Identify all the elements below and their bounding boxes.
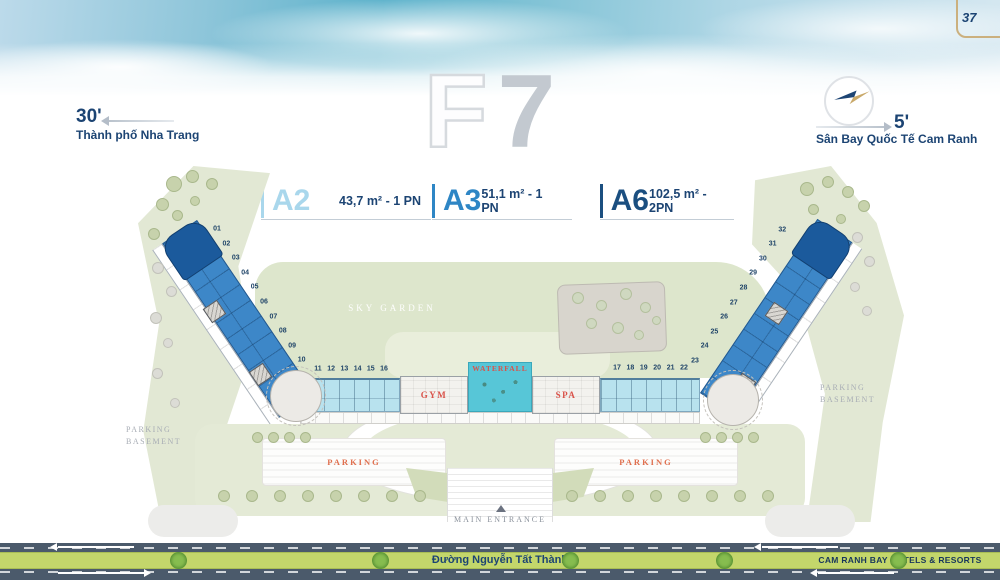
unit-number: 31	[769, 241, 777, 248]
unit-number: 02	[222, 240, 230, 247]
tree-icon	[172, 210, 183, 221]
tree-icon	[562, 552, 579, 569]
unit-number: 30	[759, 255, 767, 262]
tree-icon	[166, 176, 182, 192]
traffic-arrow-left-icon	[50, 543, 57, 551]
unit-number: 28	[740, 285, 748, 292]
right-arrow-icon	[884, 122, 892, 132]
right-arrow-line	[816, 126, 886, 128]
tree-icon	[330, 490, 342, 502]
tree-icon	[620, 288, 632, 300]
tree-icon	[864, 256, 875, 267]
unit-number: 24	[701, 343, 709, 350]
tree-icon	[808, 204, 819, 215]
tree-icon	[850, 282, 860, 292]
unit-number: 32	[778, 226, 786, 233]
main-entrance-label: MAIN ENTRANCE	[440, 515, 560, 524]
lane-dash	[0, 547, 1000, 549]
legend-spec-a6: 102,5 m² - 2PN	[649, 187, 724, 215]
unit-number: 23	[691, 358, 699, 365]
tree-icon	[678, 490, 690, 502]
tree-icon	[652, 316, 661, 325]
unit-number: 04	[241, 269, 249, 276]
tree-icon	[274, 490, 286, 502]
legend-item-a2: A2 43,7 m² - 1 PN	[261, 182, 431, 220]
parking-basement-left-label: PARKING BASEMENT	[126, 424, 196, 448]
floor-code: F 7	[424, 60, 559, 164]
nha-trang-minutes: 30'	[76, 106, 102, 128]
parking-left-label: PARKING	[327, 457, 381, 467]
tree-icon	[300, 432, 311, 443]
tree-icon	[716, 552, 733, 569]
tree-icon	[152, 368, 163, 379]
unit-number: 07	[269, 313, 277, 320]
tree-icon	[206, 178, 218, 190]
tree-icon	[358, 490, 370, 502]
tree-icon	[152, 262, 164, 274]
unit-number: 16	[380, 366, 388, 373]
tree-icon	[186, 170, 199, 183]
tree-icon	[858, 200, 870, 212]
tree-icon	[218, 490, 230, 502]
airport-label: Sân Bay Quốc Tế Cam Ranh	[816, 132, 977, 146]
left-arrow-line	[108, 120, 174, 122]
tree-icon	[640, 302, 651, 313]
tree-icon	[372, 552, 389, 569]
traffic-arrow-line	[58, 546, 134, 548]
tree-icon	[842, 186, 854, 198]
parking-basement-right-label: PARKING BASEMENT	[820, 382, 890, 406]
unit-number: 15	[367, 366, 375, 373]
tree-icon	[700, 432, 711, 443]
legend-spec-a2: 43,7 m² - 1 PN	[339, 194, 421, 208]
spa-label: SPA	[556, 390, 577, 400]
waterfall-label: WATERFALL	[462, 364, 538, 373]
tree-icon	[566, 490, 578, 502]
units-band-center-right	[600, 378, 700, 412]
unit-number: 06	[260, 299, 268, 306]
tree-icon	[170, 398, 180, 408]
tree-icon	[716, 432, 727, 443]
unit-number: 03	[232, 255, 240, 262]
unit-number: 01	[213, 226, 221, 233]
tree-icon	[572, 292, 584, 304]
sidewalk-pad-left	[148, 505, 238, 537]
floor-letter: F	[424, 60, 492, 164]
tree-icon	[634, 330, 644, 340]
tree-icon	[734, 490, 746, 502]
unit-number: 10	[298, 357, 306, 364]
tree-icon	[302, 490, 314, 502]
tree-icon	[732, 432, 743, 443]
entrance-arrow-icon	[496, 505, 506, 512]
unit-number: 09	[288, 342, 296, 349]
tree-icon	[594, 490, 606, 502]
sky-garden-label: SKY GARDEN	[332, 303, 452, 313]
rotunda-right	[707, 374, 759, 426]
legend-code-a2: A2	[272, 186, 310, 216]
unit-number: 22	[680, 365, 688, 372]
tree-icon	[268, 432, 279, 443]
tree-icon	[762, 490, 774, 502]
tree-icon	[650, 490, 662, 502]
tree-icon	[163, 338, 173, 348]
legend-item-a3: A3 51,1 m² - 1 PN	[432, 182, 572, 220]
tree-icon	[150, 312, 162, 324]
floor-digit: 7	[498, 60, 560, 164]
unit-number: 26	[720, 314, 728, 321]
traffic-arrow-line	[762, 546, 838, 548]
spa-block: SPA	[532, 376, 600, 414]
left-arrow-icon	[101, 116, 109, 126]
unit-number: 05	[251, 284, 259, 291]
unit-number: 11	[314, 366, 321, 373]
unit-number: 25	[710, 328, 718, 335]
tree-icon	[170, 552, 187, 569]
unit-number: 17	[613, 365, 621, 372]
tree-icon	[612, 322, 624, 334]
tree-icon	[800, 182, 814, 196]
brochure-page: 37 F 7 30' Thành phố Nha Trang 5' Sân Ba…	[0, 0, 1000, 580]
tree-icon	[586, 318, 597, 329]
traffic-arrow-line	[58, 572, 144, 574]
airport-minutes: 5'	[894, 112, 909, 134]
tree-icon	[166, 286, 177, 297]
unit-number: 19	[640, 365, 648, 372]
traffic-arrow-left-icon	[754, 543, 761, 551]
tree-icon	[596, 300, 607, 311]
tree-icon	[836, 214, 846, 224]
unit-number: 27	[730, 299, 738, 306]
tree-icon	[852, 232, 863, 243]
tree-icon	[148, 228, 160, 240]
legend-spec-a3: 51,1 m² - 1 PN	[481, 187, 562, 215]
gym-block: GYM	[400, 376, 468, 414]
unit-number: 12	[327, 366, 335, 373]
tree-icon	[284, 432, 295, 443]
unit-number: 14	[354, 366, 362, 373]
legend-item-a6: A6 102,5 m² - 2PN	[600, 182, 734, 220]
unit-number: 29	[749, 270, 757, 277]
sidewalk-pad-right	[765, 505, 855, 537]
tree-icon	[190, 196, 200, 206]
tree-icon	[414, 490, 426, 502]
unit-number: 20	[653, 365, 661, 372]
tree-icon	[622, 490, 634, 502]
unit-number: 21	[667, 365, 675, 372]
legend-bar-a3	[432, 184, 435, 218]
page-number: 37	[962, 10, 976, 25]
corridor-band	[300, 412, 700, 424]
unit-number: 13	[340, 366, 348, 373]
unit-number: 18	[626, 365, 634, 372]
legend-code-a6: A6	[611, 186, 649, 216]
tree-icon	[748, 432, 759, 443]
entrance-drive	[447, 468, 553, 522]
stone-garden	[557, 281, 667, 355]
traffic-arrow-line	[818, 572, 894, 574]
tree-icon	[252, 432, 263, 443]
unit-number: 08	[279, 328, 287, 335]
nha-trang-label: Thành phố Nha Trang	[76, 128, 199, 142]
rotunda-left	[270, 370, 322, 422]
tree-icon	[156, 198, 169, 211]
legend-code-a3: A3	[443, 186, 481, 216]
legend-bar-a6	[600, 184, 603, 218]
tree-icon	[890, 552, 907, 569]
gym-label: GYM	[421, 390, 448, 400]
traffic-arrow-left-icon	[810, 569, 817, 577]
tree-icon	[246, 490, 258, 502]
traffic-arrow-right-icon	[144, 569, 151, 577]
tree-icon	[386, 490, 398, 502]
tree-icon	[706, 490, 718, 502]
tree-icon	[822, 176, 834, 188]
tree-icon	[862, 306, 872, 316]
compass-icon	[824, 76, 874, 126]
parking-right-label: PARKING	[619, 457, 673, 467]
